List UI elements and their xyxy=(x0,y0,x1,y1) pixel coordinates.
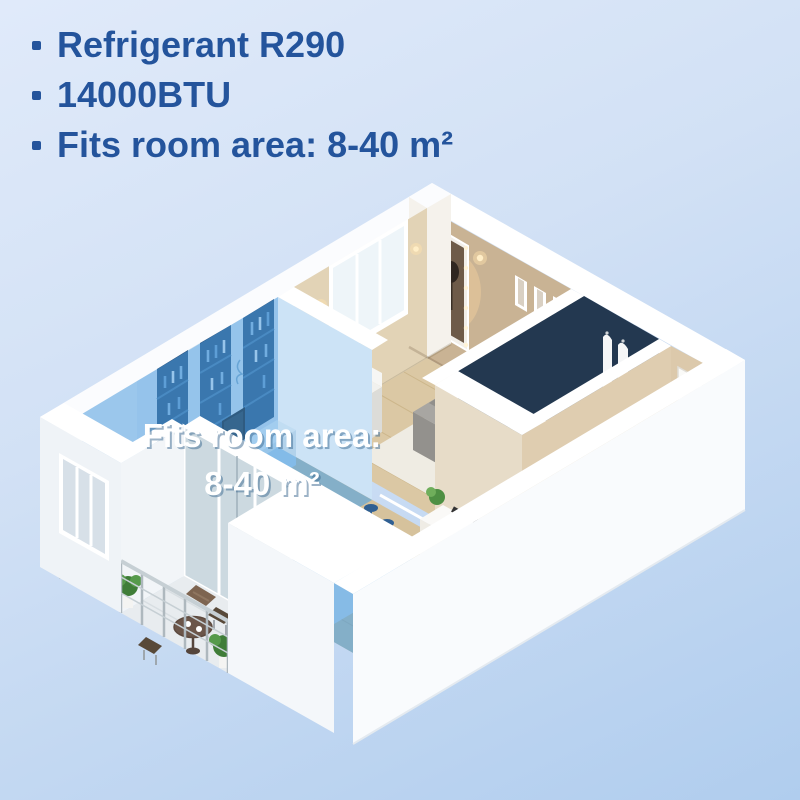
bullet-icon xyxy=(32,91,41,100)
bullet-icon xyxy=(32,41,41,50)
feature-item-refrigerant: Refrigerant R290 xyxy=(32,20,453,70)
feature-list: Refrigerant R290 14000BTU Fits room area… xyxy=(32,20,453,170)
overlay-line1: Fits room area: xyxy=(143,417,381,454)
feature-text: Refrigerant R290 xyxy=(57,24,345,66)
feature-item-btu: 14000BTU xyxy=(32,70,453,120)
feature-item-room-area: Fits room area: 8-40 m² xyxy=(32,120,453,170)
product-infographic: Refrigerant R290 14000BTU Fits room area… xyxy=(0,0,800,800)
overlay-line2: 8-40 m² xyxy=(204,465,320,502)
feature-text: Fits room area: 8-40 m² xyxy=(57,124,453,166)
bullet-icon xyxy=(32,141,41,150)
feature-text: 14000BTU xyxy=(57,74,231,116)
